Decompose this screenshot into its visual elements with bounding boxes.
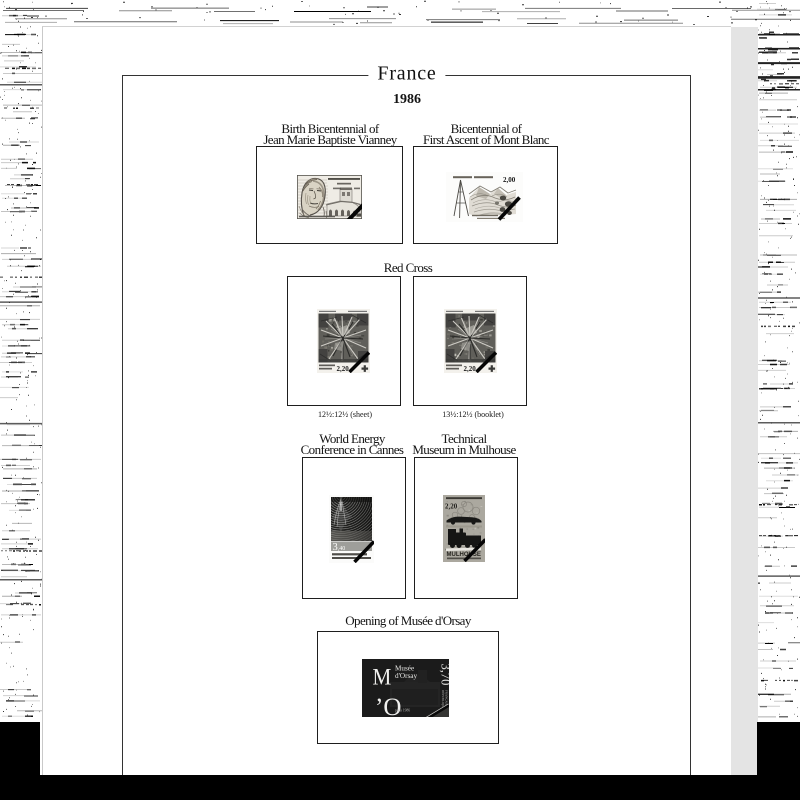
svg-text:2,20: 2,20 — [445, 503, 458, 511]
svg-text:M: M — [373, 664, 392, 690]
svg-text:paris 1986: paris 1986 — [395, 709, 410, 713]
svg-text:3,70: 3,70 — [439, 664, 450, 686]
svg-text:’O: ’O — [375, 694, 401, 717]
svg-text:2,20: 2,20 — [464, 365, 477, 373]
svg-text:2,00: 2,00 — [503, 176, 516, 184]
svg-text:MULHOUSE: MULHOUSE — [447, 552, 481, 558]
svg-text:2,20: 2,20 — [337, 365, 350, 373]
svg-text:d'Orsay: d'Orsay — [395, 672, 417, 680]
